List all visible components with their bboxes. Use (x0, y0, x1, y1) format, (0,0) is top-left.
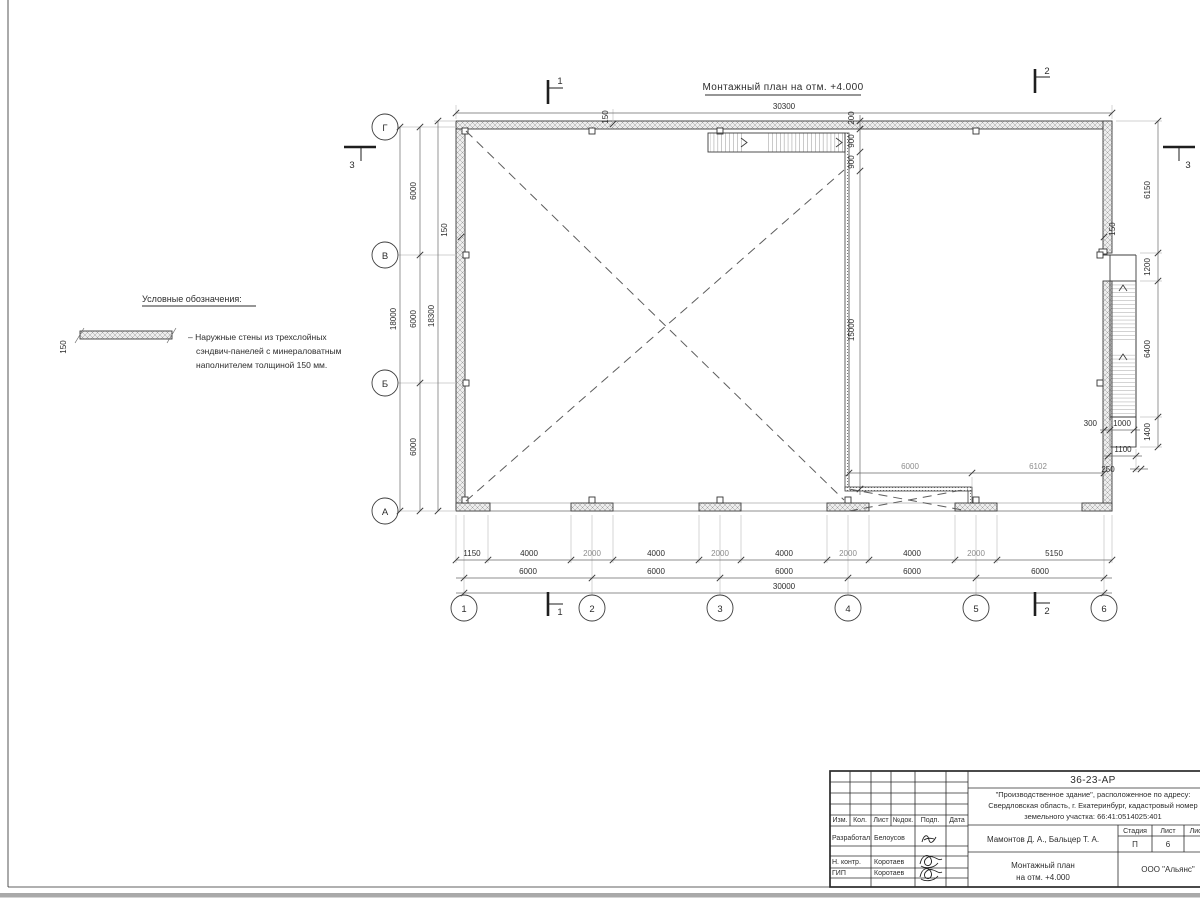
building-walls (456, 121, 1112, 511)
svg-text:4000: 4000 (520, 549, 538, 558)
svg-text:6150: 6150 (1143, 181, 1152, 199)
svg-text:Изм.: Изм. (833, 817, 848, 824)
top-stair (708, 133, 845, 152)
svg-text:сэндвич-панелей с минераловатн: сэндвич-панелей с минераловатным (196, 346, 342, 356)
svg-text:4000: 4000 (775, 549, 793, 558)
svg-text:2000: 2000 (967, 549, 985, 558)
svg-text:6000: 6000 (647, 567, 665, 576)
svg-text:Г: Г (382, 123, 387, 134)
svg-text:1100: 1100 (1114, 445, 1132, 454)
signature-gip (920, 869, 942, 881)
svg-text:30000: 30000 (773, 582, 796, 591)
svg-text:6000: 6000 (409, 182, 418, 200)
svg-text:1: 1 (461, 604, 466, 615)
svg-text:4000: 4000 (647, 549, 665, 558)
svg-text:Белоусов: Белоусов (874, 835, 905, 842)
svg-text:2: 2 (589, 604, 594, 615)
extension-lines (398, 105, 1162, 595)
svg-text:Коротаев: Коротаев (874, 859, 905, 866)
svg-text:15000: 15000 (847, 318, 856, 341)
svg-text:Кол.: Кол. (853, 817, 867, 824)
left-hall-diagonals (466, 131, 844, 501)
company-name: ООО "Альянс" (1141, 865, 1195, 874)
svg-text:Н. контр.: Н. контр. (832, 859, 861, 866)
dim-bottom: 1150 4000 2000 4000 2000 4000 2000 4000 … (453, 549, 1115, 596)
svg-text:900: 900 (847, 155, 856, 169)
axis-circles-bottom: 1 2 3 4 5 6 (451, 595, 1117, 621)
sheet-frame (0, 0, 1200, 898)
section-2-bottom: 2 (1044, 606, 1049, 617)
section-1-bottom: 1 (557, 607, 562, 618)
sandwich-panel-symbol (80, 331, 172, 339)
svg-text:Листов: Листов (1190, 828, 1200, 835)
svg-text:Дата: Дата (949, 817, 965, 824)
dim-left: 18000 6000 6000 6000 18300 150 (389, 118, 464, 514)
svg-text:наполнителем толщиной 150 мм.: наполнителем толщиной 150 мм. (196, 360, 327, 370)
svg-text:150: 150 (59, 340, 68, 354)
plan-title-text: Монтажный план на отм. +4.000 (702, 82, 863, 93)
floor-plan-sheet: Монтажный план на отм. +4.000 (0, 0, 1200, 900)
svg-text:2000: 2000 (711, 549, 729, 558)
section-1-top: 1 (557, 76, 562, 87)
svg-text:6000: 6000 (409, 438, 418, 456)
svg-text:Свердловская область, г. Екате: Свердловская область, г. Екатеринбург, к… (988, 801, 1197, 810)
svg-text:6000: 6000 (901, 462, 919, 471)
title-block: 36-23-АР "Производственное здание", расп… (830, 771, 1200, 887)
svg-text:1000: 1000 (1113, 419, 1131, 428)
svg-text:– Наружные стены из трехслойны: – Наружные стены из трехслойных (188, 332, 327, 342)
svg-text:150: 150 (601, 110, 610, 124)
signature-developer (922, 836, 936, 843)
svg-text:ГИП: ГИП (832, 870, 846, 877)
authors: Мамонтов Д. А., Бальцер Т. А. (987, 835, 1099, 844)
svg-text:Разработал: Разработал (832, 834, 870, 842)
svg-text:Лист: Лист (873, 817, 889, 824)
svg-text:Монтажный план: Монтажный план (1011, 861, 1075, 870)
svg-text:"Производственное здание", рас: "Производственное здание", расположенное… (996, 790, 1191, 799)
svg-text:Лист: Лист (1160, 828, 1176, 835)
svg-text:30300: 30300 (773, 102, 796, 111)
svg-text:1150: 1150 (463, 549, 481, 558)
svg-text:3: 3 (717, 604, 722, 615)
svg-text:18000: 18000 (389, 307, 398, 330)
svg-text:5: 5 (973, 604, 978, 615)
svg-text:6: 6 (1101, 604, 1106, 615)
svg-text:6000: 6000 (903, 567, 921, 576)
plan-title: Монтажный план на отм. +4.000 (702, 82, 863, 95)
svg-text:Б: Б (382, 379, 388, 390)
signature-ncontrol (920, 856, 942, 868)
stage-value: П (1132, 840, 1138, 849)
svg-text:№док.: №док. (893, 817, 914, 824)
section-2-top: 2 (1044, 66, 1049, 77)
legend: Условные обозначения: 150 – Наружные сте… (59, 294, 342, 370)
svg-text:4000: 4000 (903, 549, 921, 558)
svg-text:Стадия: Стадия (1123, 828, 1147, 835)
svg-text:6400: 6400 (1143, 340, 1152, 358)
svg-text:5150: 5150 (1045, 549, 1063, 558)
bottom-opening-diagonals (849, 489, 968, 511)
svg-text:В: В (382, 251, 388, 262)
svg-text:земельного участка: 66:41:0514: земельного участка: 66:41:0514025:401 (1024, 812, 1161, 821)
svg-text:200: 200 (847, 111, 856, 125)
sheet-number: 6 (1166, 840, 1171, 849)
svg-text:А: А (382, 507, 389, 518)
document-code: 36-23-АР (1070, 775, 1115, 786)
svg-text:2000: 2000 (583, 549, 601, 558)
svg-text:4: 4 (845, 604, 850, 615)
dim-interior: 200 900 900 15000 6000 6102 (846, 111, 1107, 495)
svg-text:6000: 6000 (1031, 567, 1049, 576)
svg-text:Коротаев: Коротаев (874, 870, 905, 877)
svg-text:18300: 18300 (427, 304, 436, 327)
section-3-right: 3 (1185, 160, 1190, 171)
svg-text:2000: 2000 (839, 549, 857, 558)
svg-text:6102: 6102 (1029, 462, 1047, 471)
svg-text:150: 150 (440, 223, 449, 237)
svg-text:300: 300 (1084, 419, 1098, 428)
section-3-left: 3 (349, 160, 354, 171)
svg-text:6000: 6000 (519, 567, 537, 576)
legend-title: Условные обозначения: (142, 294, 242, 304)
column-markers (462, 128, 1103, 503)
svg-text:6000: 6000 (409, 310, 418, 328)
svg-text:150: 150 (1108, 222, 1117, 236)
svg-text:Подп.: Подп. (921, 817, 940, 824)
svg-text:1400: 1400 (1143, 423, 1152, 441)
svg-text:6000: 6000 (775, 567, 793, 576)
svg-text:900: 900 (847, 134, 856, 148)
svg-text:1200: 1200 (1143, 258, 1152, 276)
interior-wall (845, 133, 972, 503)
svg-text:на отм. +4.000: на отм. +4.000 (1016, 873, 1070, 882)
